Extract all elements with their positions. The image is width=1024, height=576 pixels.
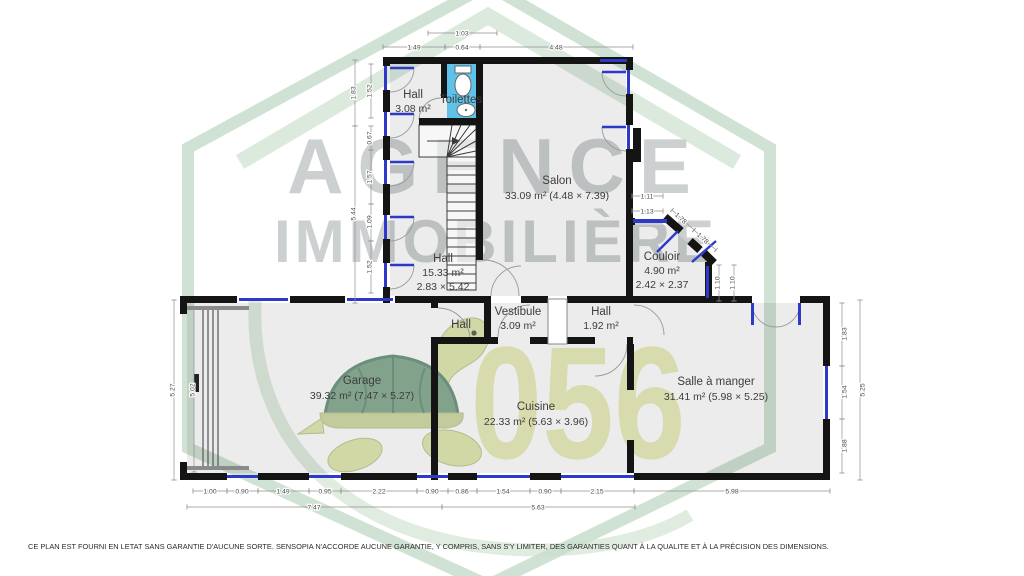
room-label-hall-back: Hall xyxy=(591,306,611,318)
floor-plan-svg: AGENCE IMMOBILIÈRE 056 xyxy=(0,0,1024,576)
dim-label: 0.67 xyxy=(367,131,374,144)
room-label-garage: Garage xyxy=(343,375,381,387)
room-area-couloir: 4.90 m² xyxy=(644,265,680,277)
dim-label: 0.90 xyxy=(538,489,551,496)
dim-label: 1.54 xyxy=(496,489,509,496)
dim-label: 5.44 xyxy=(351,207,358,220)
dim-label: 0.90 xyxy=(235,489,248,496)
floor-plan-page: AGENCE IMMOBILIÈRE 056 xyxy=(0,0,1024,576)
room-area-hall-mid: 15.33 m² xyxy=(422,267,464,279)
room-size-hall-mid: 2.83 × 5.42 xyxy=(417,281,470,293)
room-area-salle-a-manger: 31.41 m² (5.98 × 5.25) xyxy=(664,391,768,403)
room-label-hall-top: Hall xyxy=(403,89,423,101)
room-area-hall-back: 1.92 m² xyxy=(583,320,619,332)
dim-label: 1.03 xyxy=(455,31,468,38)
room-area-vestibule: 3.09 m² xyxy=(500,320,536,332)
dim-label: 1.52 xyxy=(367,260,374,273)
room-label-cuisine: Cuisine xyxy=(517,401,555,413)
room-label-salle-a-manger: Salle à manger xyxy=(677,376,755,388)
dim-label: 1.09 xyxy=(367,215,374,228)
toilet-fixture xyxy=(455,66,471,96)
upper-block-floor xyxy=(390,64,626,296)
room-label-vestibule: Vestibule xyxy=(495,306,542,318)
room-label-salon: Salon xyxy=(542,175,571,187)
room-label-toilettes: Toilettes xyxy=(440,94,482,106)
room-label-hall-small: Hall xyxy=(451,319,471,331)
dim-label: 2.22 xyxy=(372,489,385,496)
dim-label: 1.13 xyxy=(640,209,653,216)
dim-label: 5.02 xyxy=(190,383,197,396)
dim-label: 1.83 xyxy=(351,86,358,99)
dim-label: 1.54 xyxy=(842,385,849,398)
pocket-door-panel xyxy=(548,299,567,344)
room-label-couloir: Couloir xyxy=(644,251,681,263)
dim-label: 1.10 xyxy=(730,276,737,289)
dim-label: 5.98 xyxy=(725,489,738,496)
dim-label: 1.11 xyxy=(641,194,654,201)
dim-label: 1.52 xyxy=(367,84,374,97)
dim-label: 5.25 xyxy=(860,383,867,396)
room-area-garage: 39.32 m² (7.47 × 5.27) xyxy=(310,390,414,402)
dim-label: 2.15 xyxy=(590,489,603,496)
room-size-couloir: 2.42 × 2.37 xyxy=(636,279,689,291)
dim-label: 1.88 xyxy=(842,439,849,452)
dim-label: 7.47 xyxy=(307,505,320,512)
room-area-cuisine: 22.33 m² (5.63 × 3.96) xyxy=(484,416,588,428)
dim-label: 0.64 xyxy=(455,45,468,52)
dim-label: 4.48 xyxy=(549,45,562,52)
dim-label: 5.63 xyxy=(531,505,544,512)
dim-label: 1.10 xyxy=(715,276,722,289)
dim-label: 1.00 xyxy=(203,489,216,496)
room-label-hall-mid: Hall xyxy=(433,253,453,265)
dim-label: 0.86 xyxy=(455,489,468,496)
dim-label: 1.83 xyxy=(842,327,849,340)
dim-label: 1.49 xyxy=(276,489,289,496)
dim-label: 1.57 xyxy=(367,170,374,183)
disclaimer-text: CE PLAN EST FOURNI EN LETAT SANS GARANTI… xyxy=(28,542,829,551)
room-area-hall-top: 3.08 m² xyxy=(395,103,431,115)
dim-label: 5.27 xyxy=(170,383,177,396)
room-area-salon: 33.09 m² (4.48 × 7.39) xyxy=(505,190,609,202)
dim-label: 1.49 xyxy=(407,45,420,52)
dim-label: 0.90 xyxy=(425,489,438,496)
dim-label: 0.95 xyxy=(318,489,331,496)
